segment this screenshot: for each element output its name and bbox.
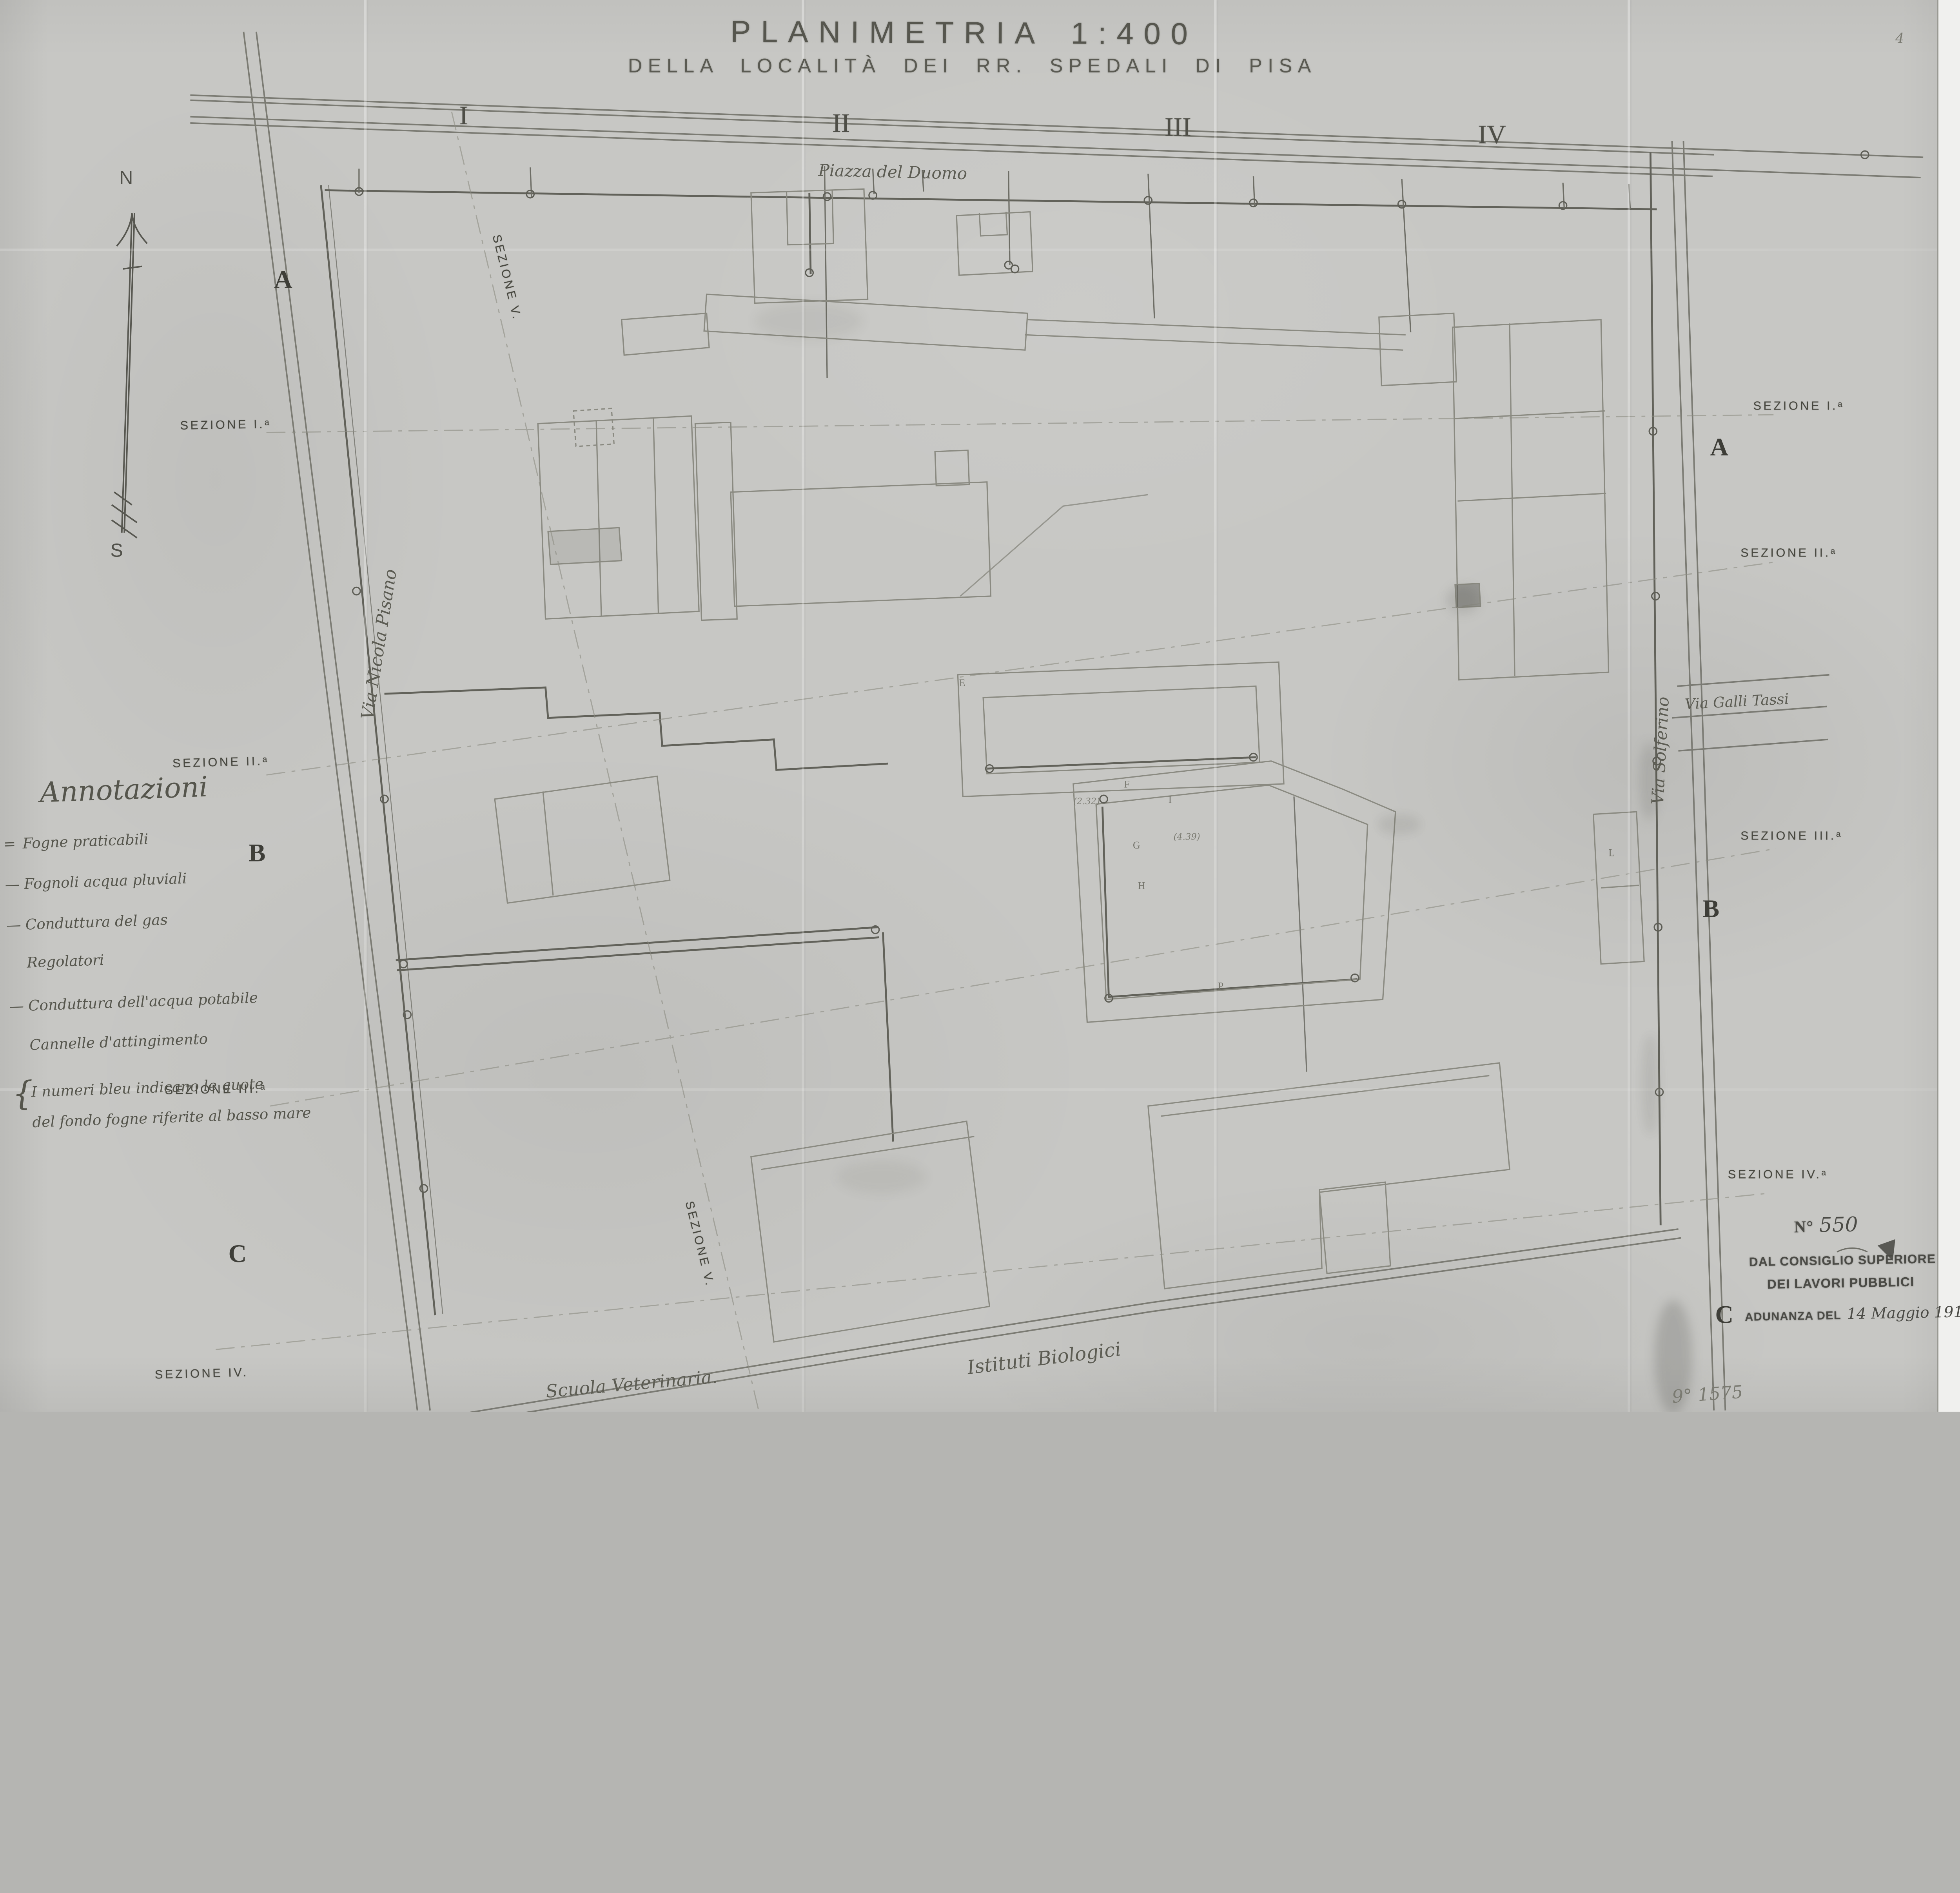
legend-item: —Conduttura del gas xyxy=(6,910,168,934)
section-label-right-4: SEZIONE IV.ᵃ xyxy=(1728,1168,1828,1182)
section-label-right-3: SEZIONE III.ᵃ xyxy=(1740,830,1843,844)
grid-numeral-2: II xyxy=(832,108,850,140)
legend-item: =Fogne praticabili xyxy=(3,830,149,853)
section-lines xyxy=(216,112,1776,1411)
row-letter-a-right: A xyxy=(1710,434,1728,463)
legend-symbol: — xyxy=(6,916,25,934)
scan-edge xyxy=(1937,0,1960,1412)
ink-smudge xyxy=(1446,586,1479,614)
legend-symbol: — xyxy=(9,997,29,1015)
ink-smudge xyxy=(755,302,863,340)
compass-south-label: S xyxy=(111,540,123,562)
level-quote: (4.39) xyxy=(1174,832,1200,842)
point-label: E xyxy=(959,677,965,689)
section-label-left-2: SEZIONE II.ᵃ xyxy=(172,755,269,771)
row-letter-c-left: C xyxy=(229,1240,247,1269)
grid-numeral-1: I xyxy=(459,100,468,132)
legend-symbol xyxy=(11,1050,30,1051)
legend-item: Regolatori xyxy=(7,951,104,972)
paper-crease-horizontal xyxy=(0,248,1960,251)
manhole-circles xyxy=(353,151,1869,1192)
stamp-number: N° 550 xyxy=(1794,1212,1858,1239)
legend-item: —Conduttura dell'acqua potabile xyxy=(9,989,258,1015)
paper-crease xyxy=(1628,0,1630,1412)
paper-crease xyxy=(1214,0,1216,1412)
row-letter-a-left: A xyxy=(274,267,292,296)
plan-subtitle: DELLA LOCALITÀ DEI RR. SPEDALI DI PISA xyxy=(628,56,1262,78)
legend-symbol: = xyxy=(3,834,23,853)
point-label: I xyxy=(1169,794,1172,805)
point-label: F xyxy=(1124,779,1129,790)
section-label-right-1: SEZIONE I.ᵃ xyxy=(1753,399,1844,413)
legend-symbol xyxy=(13,1127,33,1128)
legend-symbol xyxy=(8,968,27,968)
legend-symbol: — xyxy=(5,875,24,894)
band-connectors xyxy=(359,166,1630,378)
paper-crease xyxy=(802,0,804,1412)
stamp-line3: ADUNANZA DEL 14 Maggio 1915 xyxy=(1745,1300,1960,1327)
legend-item: —Fognoli acqua pluviali xyxy=(5,869,187,893)
row-letter-b-right: B xyxy=(1702,896,1719,925)
point-label: H xyxy=(1138,880,1145,892)
ink-smudge xyxy=(1642,1034,1659,1135)
piazza-del-duomo-label: Piazza del Duomo xyxy=(818,162,967,184)
point-label: P xyxy=(1218,981,1223,992)
legend-item: Cannelle d'attingimento xyxy=(10,1030,208,1055)
legend-annotazioni: Annotazioni =Fogne praticabili —Fognoli … xyxy=(1,768,331,1147)
point-label: L xyxy=(1609,847,1615,859)
legend-symbol: { xyxy=(12,1075,32,1114)
grid-numeral-4: IV xyxy=(1478,119,1506,151)
ink-smudge xyxy=(1378,814,1421,835)
plan-title: PLANIMETRIA 1:400 xyxy=(710,15,1218,53)
plan-sheet: PLANIMETRIA 1:400 DELLA LOCALITÀ DEI RR.… xyxy=(0,0,1960,1412)
compass-north-label: N xyxy=(119,167,133,189)
level-quote: (2.32) xyxy=(1073,796,1100,807)
section-label-right-2: SEZIONE II.ᵃ xyxy=(1740,547,1837,561)
point-label: G xyxy=(1133,840,1140,851)
row-letter-c-right: C xyxy=(1715,1301,1733,1330)
north-arrow xyxy=(112,213,147,538)
grid-numeral-3: III xyxy=(1165,112,1191,143)
corner-mark-top-right: 4 xyxy=(1895,31,1904,47)
legend-heading: Annotazioni xyxy=(39,772,208,810)
section-label-left-4: SEZIONE IV. xyxy=(154,1366,249,1383)
section-label-left-1: SEZIONE I.ᵃ xyxy=(180,418,271,433)
ink-smudge xyxy=(837,1160,926,1193)
